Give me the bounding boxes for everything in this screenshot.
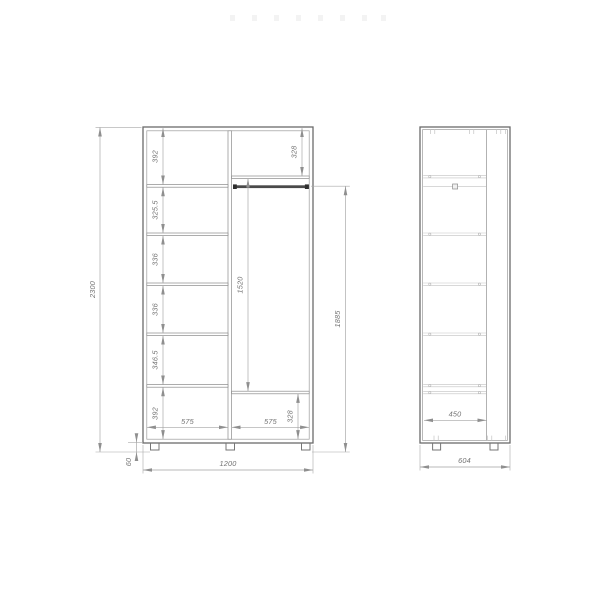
front-leg-center — [226, 443, 235, 450]
shelf-left-2 — [147, 233, 228, 236]
dim-label-bay-left: 575 — [181, 417, 195, 426]
shelf-right-bottom — [232, 391, 310, 394]
side-carcass-outline — [420, 127, 510, 443]
side-leg-front — [433, 443, 441, 450]
side-view — [420, 127, 510, 450]
dim-label-left-comp-1: 392 — [151, 150, 160, 163]
dim-label-leg-height: 60 — [124, 458, 133, 467]
dim-label-rod-to-floor: 1885 — [333, 310, 342, 328]
shelf-left-5 — [147, 385, 228, 388]
front-leg-left — [151, 443, 160, 450]
dim-label-top-right: 328 — [290, 145, 299, 159]
watermark-dots — [230, 15, 386, 21]
dim-label-left-comp-5: 346.5 — [151, 350, 160, 370]
rod-cap-left — [233, 184, 237, 189]
dim-label-bay-right: 575 — [264, 417, 278, 426]
dim-label-bottom-right: 328 — [286, 409, 295, 423]
dim-label-overall-depth: 604 — [458, 456, 471, 465]
wardrobe-technical-drawing: 2300 392 325.5 336 336 346.5 392 328 152… — [0, 0, 600, 600]
dim-label-left-comp-6: 392 — [151, 407, 160, 420]
shelf-left-3 — [147, 283, 228, 286]
dim-label-left-comp-3: 336 — [151, 252, 160, 266]
dim-label-left-comp-2: 325.5 — [151, 200, 160, 220]
center-divider-panel — [228, 131, 232, 439]
front-leg-right — [302, 443, 311, 450]
shelf-left-4 — [147, 333, 228, 336]
drawing-canvas: 2300 392 325.5 336 336 346.5 392 328 152… — [0, 0, 600, 600]
dim-label-interior-depth: 450 — [449, 410, 462, 419]
side-leg-back — [490, 443, 498, 450]
rod-cross-section — [453, 184, 458, 189]
dim-label-hanging-space: 1520 — [236, 276, 245, 293]
rod-bar — [233, 185, 309, 188]
shelf-right-top — [232, 176, 310, 179]
rod-cap-right — [305, 184, 309, 189]
dim-label-overall-height: 2300 — [88, 281, 97, 299]
shelf-left-1 — [147, 185, 228, 188]
dim-label-left-comp-4: 336 — [151, 302, 160, 316]
dim-label-overall-width: 1200 — [219, 459, 236, 468]
front-view — [143, 127, 313, 450]
